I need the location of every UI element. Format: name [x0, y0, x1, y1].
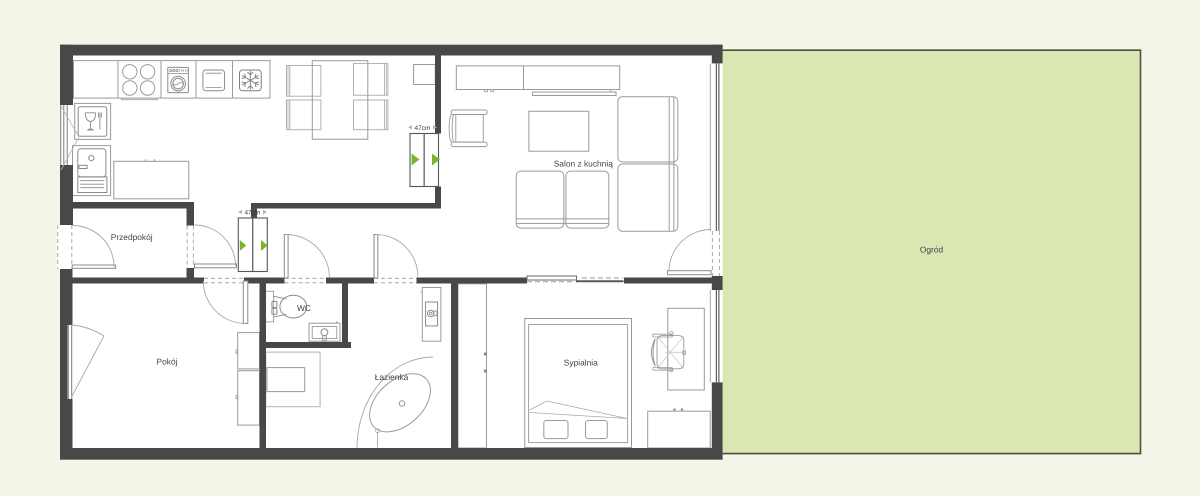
svg-text:47cm: 47cm: [245, 210, 261, 217]
svg-text:WC: WC: [297, 303, 311, 313]
svg-text:Pokój: Pokój: [157, 356, 178, 366]
svg-text:47cm: 47cm: [415, 125, 431, 132]
svg-text:Przedpokój: Przedpokój: [111, 232, 153, 242]
svg-text:Ogród: Ogród: [920, 244, 944, 254]
svg-text:Sypialnia: Sypialnia: [564, 358, 598, 368]
svg-text:Salon z kuchnią: Salon z kuchnią: [554, 158, 613, 168]
svg-text:Łazienka: Łazienka: [375, 372, 409, 382]
